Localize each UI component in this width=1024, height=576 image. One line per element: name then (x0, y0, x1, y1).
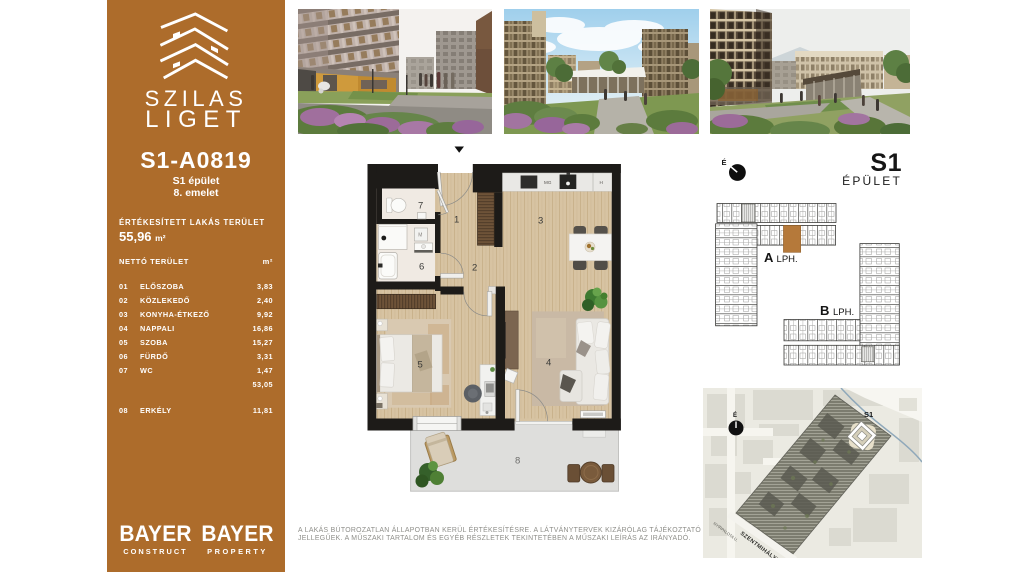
svg-text:7: 7 (418, 201, 423, 212)
svg-text:É: É (722, 158, 727, 167)
svg-text:5: 5 (418, 360, 423, 371)
svg-text:6: 6 (419, 262, 424, 273)
svg-text:B LPH.: B LPH. (820, 303, 854, 318)
svg-text:S1: S1 (864, 410, 873, 419)
svg-text:4: 4 (546, 358, 551, 369)
svg-text:3: 3 (538, 216, 543, 227)
svg-text:2: 2 (472, 263, 477, 274)
svg-text:1: 1 (454, 215, 459, 226)
svg-text:M: M (418, 233, 422, 239)
svg-text:É: É (733, 411, 737, 419)
svg-text:8: 8 (515, 456, 520, 467)
svg-text:H: H (600, 180, 603, 185)
svg-text:MG: MG (544, 180, 552, 185)
